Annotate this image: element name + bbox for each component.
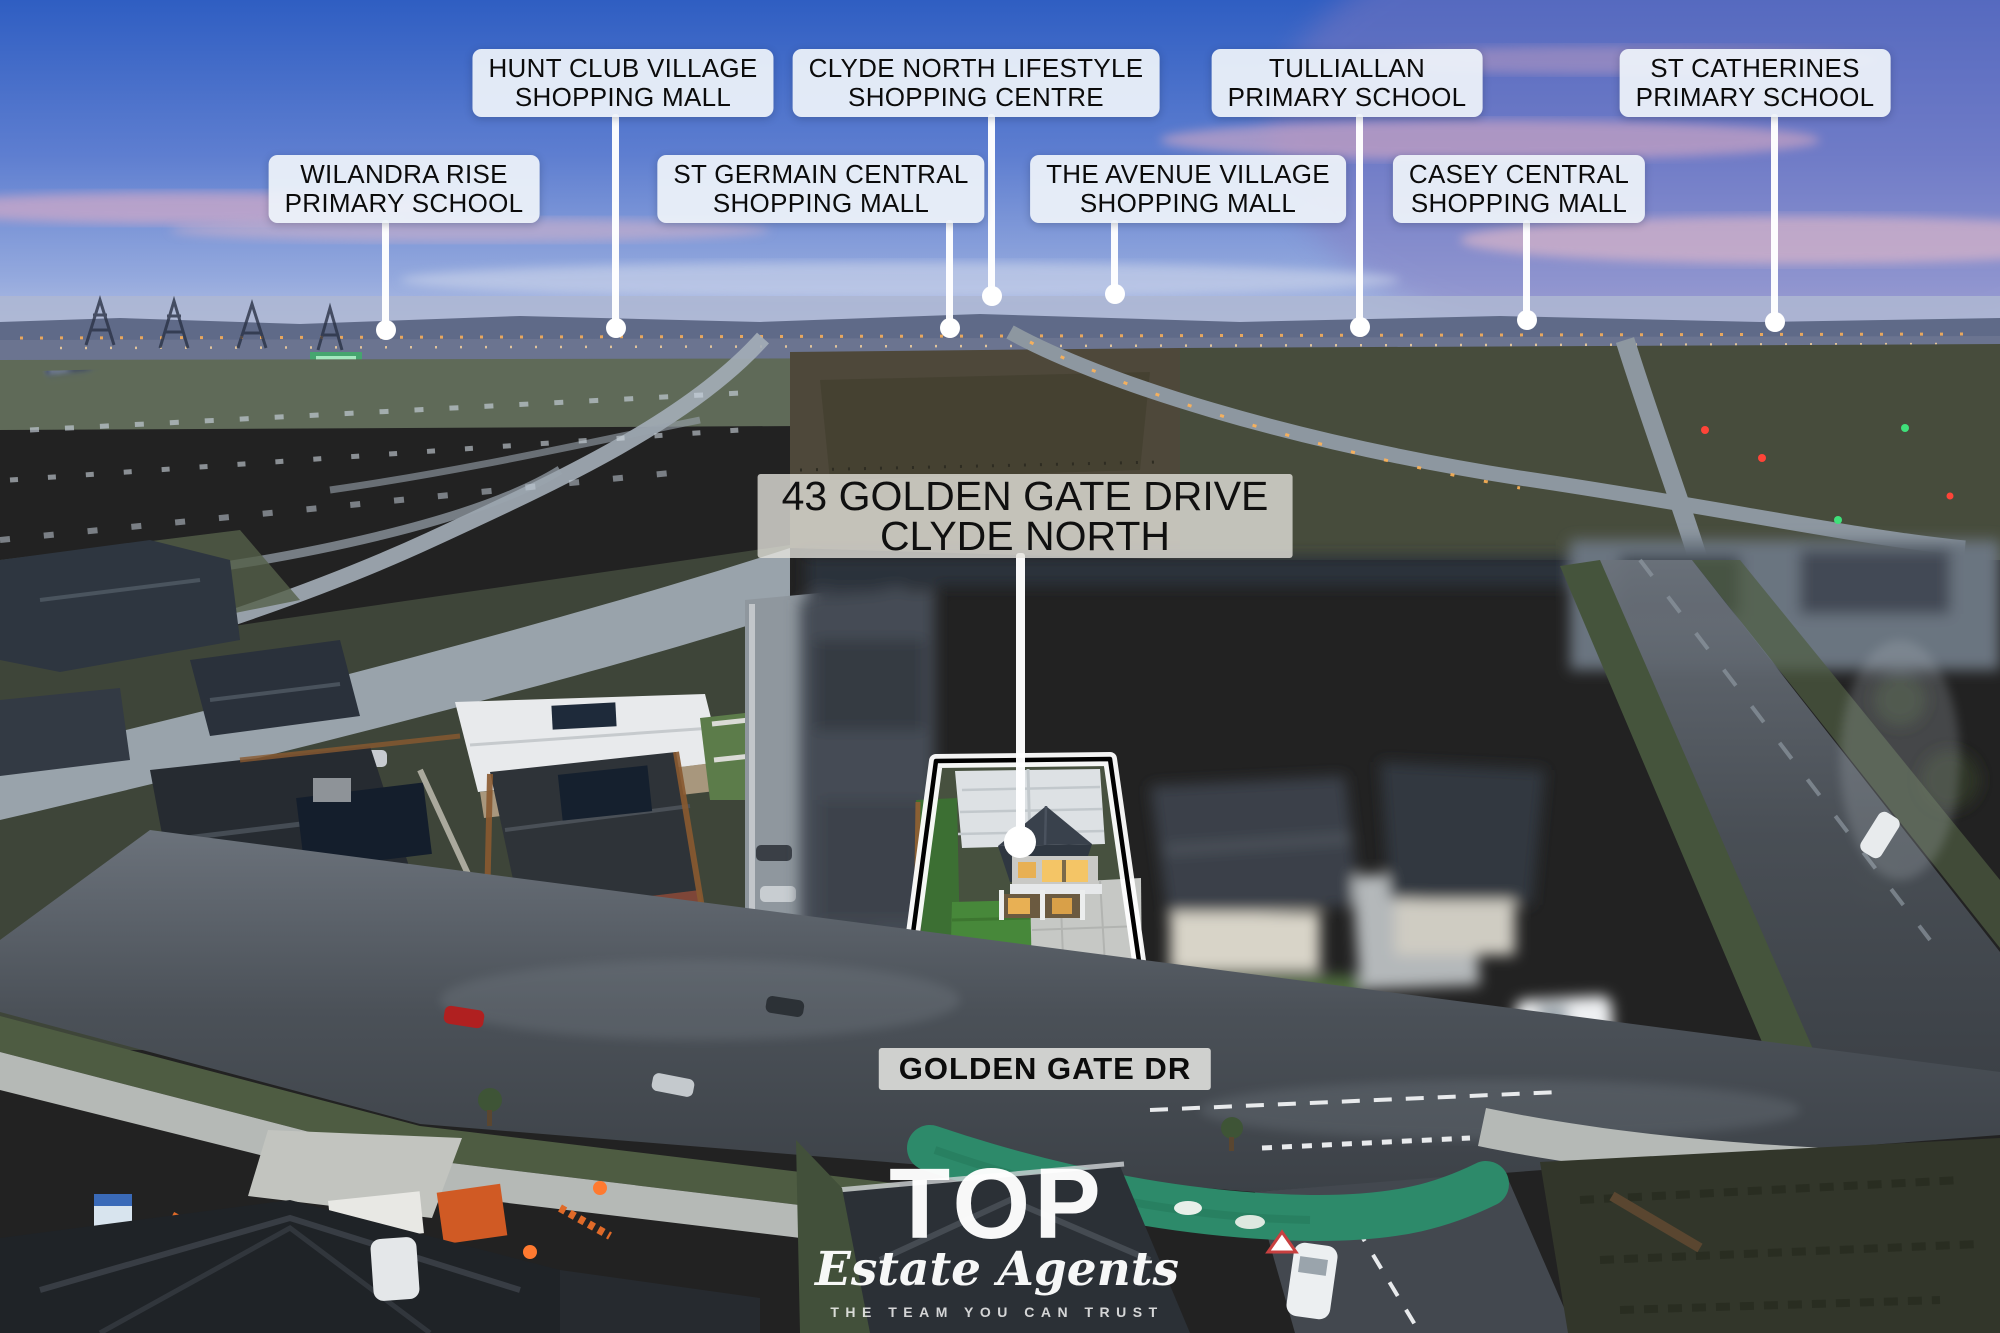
callout-line2: SHOPPING MALL	[673, 189, 968, 218]
leader-line-st-catherines	[1771, 114, 1778, 322]
callout-casey-central: CASEY CENTRAL SHOPPING MALL	[1393, 155, 1645, 223]
callout-line2: PRIMARY SCHOOL	[1636, 83, 1875, 112]
leader-line-property	[1016, 553, 1025, 842]
leader-dot-property	[1004, 826, 1036, 858]
callout-line1: HUNT CLUB VILLAGE	[488, 54, 757, 83]
leader-dot-clyde-north	[982, 286, 1002, 306]
agency-logo-name: Estate Agents	[815, 1246, 1179, 1294]
callout-line2: SHOPPING MALL	[1409, 189, 1629, 218]
agency-logo: TOP Estate Agents THE TEAM YOU CAN TRUST	[815, 1158, 1179, 1320]
aerial-property-marketing-image: HUNT CLUB VILLAGE SHOPPING MALL CLYDE NO…	[0, 0, 2000, 1333]
leader-dot-st-germain	[940, 318, 960, 338]
callout-line2: PRIMARY SCHOOL	[285, 189, 524, 218]
leader-line-tulliallan	[1356, 114, 1363, 327]
callout-line1: THE AVENUE VILLAGE	[1046, 160, 1330, 189]
callout-the-avenue-village: THE AVENUE VILLAGE SHOPPING MALL	[1030, 155, 1346, 223]
agency-logo-tagline: THE TEAM YOU CAN TRUST	[815, 1304, 1179, 1320]
callout-line1: ST CATHERINES	[1636, 54, 1875, 83]
callout-line1: ST GERMAIN CENTRAL	[673, 160, 968, 189]
callout-line2: SHOPPING MALL	[1046, 189, 1330, 218]
callout-st-germain-central: ST GERMAIN CENTRAL SHOPPING MALL	[657, 155, 984, 223]
street-name-label: GOLDEN GATE DR	[879, 1048, 1211, 1090]
leader-line-hunt-club	[612, 114, 619, 328]
callout-line2: SHOPPING MALL	[488, 83, 757, 112]
callout-clyde-north-lifestyle: CLYDE NORTH LIFESTYLE SHOPPING CENTRE	[793, 49, 1160, 117]
callout-line2: SHOPPING CENTRE	[809, 83, 1144, 112]
leader-line-the-avenue	[1111, 220, 1118, 294]
leader-line-casey	[1523, 220, 1530, 320]
callout-tulliallan: TULLIALLAN PRIMARY SCHOOL	[1212, 49, 1483, 117]
leader-line-st-germain	[946, 220, 953, 328]
agency-logo-brand: TOP	[815, 1158, 1179, 1250]
leader-dot-tulliallan	[1350, 317, 1370, 337]
property-address-line2: CLYDE NORTH	[782, 516, 1269, 556]
callout-wilandra-rise: WILANDRA RISE PRIMARY SCHOOL	[269, 155, 540, 223]
callout-line1: TULLIALLAN	[1228, 54, 1467, 83]
callout-line1: CLYDE NORTH LIFESTYLE	[809, 54, 1144, 83]
callout-line1: WILANDRA RISE	[285, 160, 524, 189]
callout-line2: PRIMARY SCHOOL	[1228, 83, 1467, 112]
leader-line-clyde-north	[988, 114, 995, 296]
leader-dot-hunt-club	[606, 318, 626, 338]
property-address-label: 43 GOLDEN GATE DRIVE CLYDE NORTH	[758, 474, 1293, 558]
property-address-line1: 43 GOLDEN GATE DRIVE	[782, 476, 1269, 516]
leader-dot-the-avenue	[1105, 284, 1125, 304]
callout-hunt-club-village: HUNT CLUB VILLAGE SHOPPING MALL	[472, 49, 773, 117]
leader-dot-casey	[1517, 310, 1537, 330]
leader-dot-st-catherines	[1765, 312, 1785, 332]
leader-dot-wilandra	[376, 320, 396, 340]
callout-st-catherines: ST CATHERINES PRIMARY SCHOOL	[1620, 49, 1891, 117]
callout-line1: CASEY CENTRAL	[1409, 160, 1629, 189]
leader-line-wilandra	[382, 220, 389, 330]
